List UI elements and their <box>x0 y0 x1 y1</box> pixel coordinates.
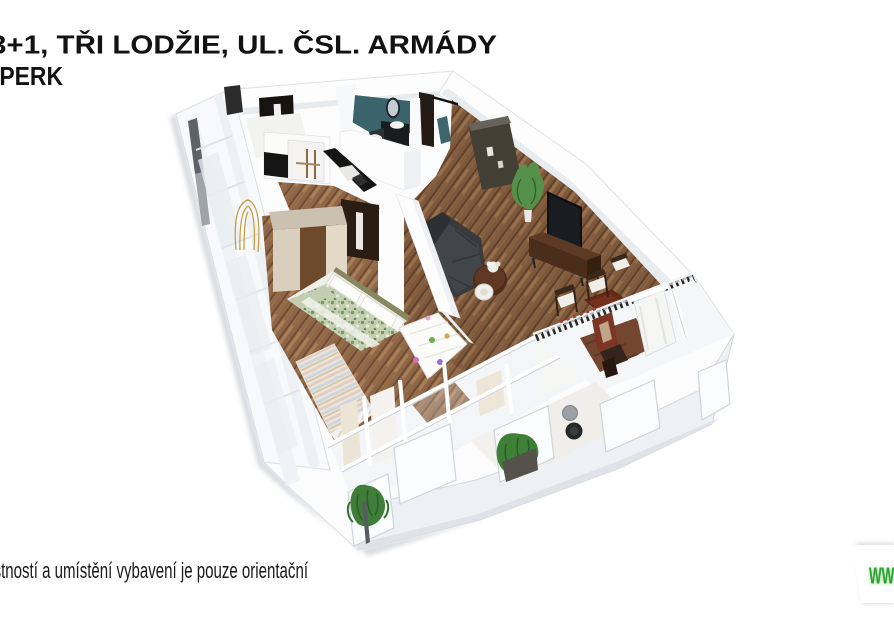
svg-text:Rozměry místností a umístění v: Rozměry místností a umístění vybavení je… <box>0 558 308 583</box>
svg-text:ŠUMPERK: ŠUMPERK <box>0 61 64 91</box>
svg-text:WWW: WWW <box>869 563 894 589</box>
svg-text:3+1, TŘI LODŽIE, UL. ČSL. ARMÁ: 3+1, TŘI LODŽIE, UL. ČSL. ARMÁDY <box>0 30 497 60</box>
